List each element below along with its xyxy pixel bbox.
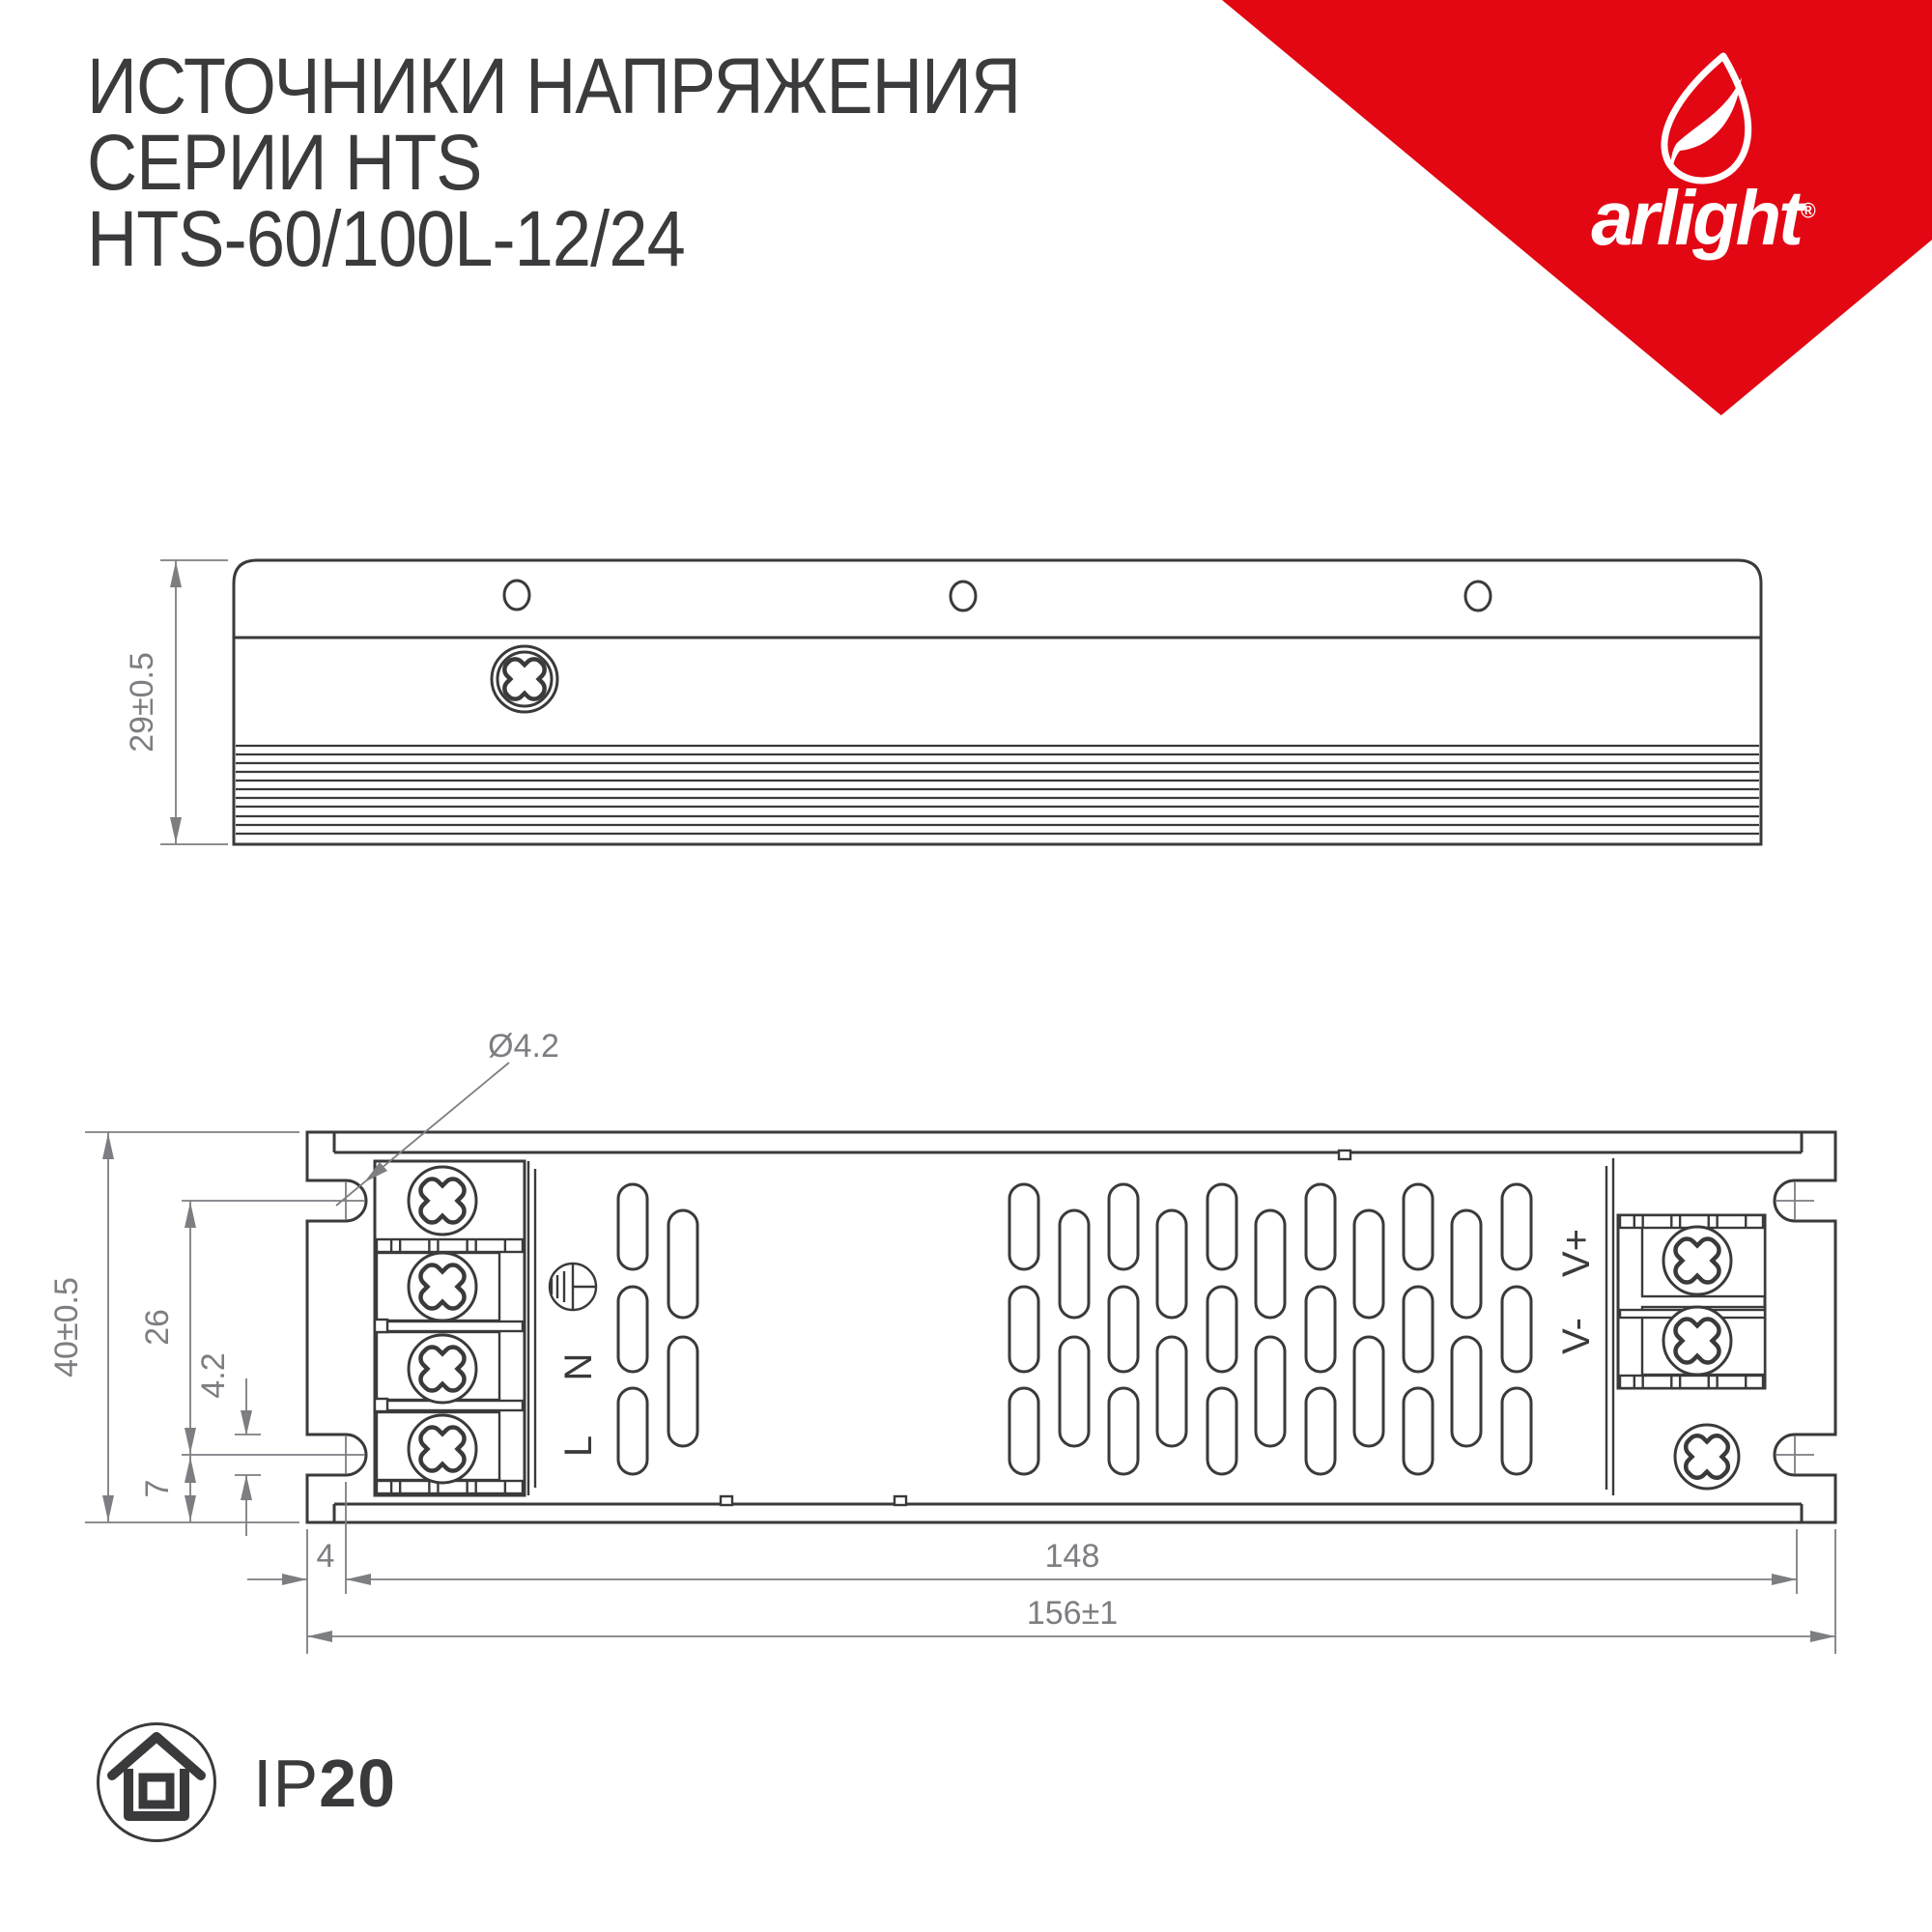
vent-slot <box>1256 1337 1285 1446</box>
terminal-label-v-plus: V+ <box>1555 1229 1598 1277</box>
vent-slot <box>1404 1388 1433 1474</box>
vent-slot <box>1009 1287 1038 1372</box>
dim-hole-diameter: Ø4.2 <box>488 1028 559 1065</box>
vent-slot <box>1404 1184 1433 1269</box>
indoor-house-icon <box>97 1722 216 1842</box>
vent-slot <box>1060 1210 1089 1318</box>
vent-slot <box>1009 1184 1038 1269</box>
vent-slot <box>1404 1287 1433 1372</box>
terminal-divider-tab <box>375 1320 387 1332</box>
screw <box>1663 1307 1731 1375</box>
screw <box>1675 1425 1739 1489</box>
vent-slot <box>1109 1388 1138 1474</box>
dim-26: 26 <box>139 1309 176 1346</box>
oval-hole <box>1465 582 1491 611</box>
screw <box>409 1415 476 1483</box>
terminal-divider-tab <box>375 1399 387 1411</box>
vent-slot <box>1502 1184 1531 1269</box>
vent-slot <box>1502 1388 1531 1474</box>
screw <box>1663 1227 1731 1294</box>
vent-slot <box>1354 1210 1383 1318</box>
dim-4: 4 <box>317 1538 335 1575</box>
screw <box>492 646 557 712</box>
technical-drawing: 29±0.5 40±0.5 26 4.2 7 4 148 156±1 Ø4.2 … <box>0 0 1932 1932</box>
screw <box>409 1253 476 1321</box>
vent-slot <box>1060 1337 1089 1446</box>
vent-slot <box>1207 1184 1236 1269</box>
side-view-body <box>234 560 1761 844</box>
ip-prefix: IP <box>253 1746 319 1821</box>
vent-slot <box>1452 1337 1481 1446</box>
vent-slot <box>618 1287 647 1372</box>
vent-slot <box>1207 1388 1236 1474</box>
vent-slot <box>1452 1210 1481 1318</box>
oval-hole <box>504 581 529 610</box>
screw <box>409 1335 476 1403</box>
dim-40: 40±0.5 <box>48 1277 85 1378</box>
flange-notch <box>721 1496 732 1505</box>
vent-slot <box>1207 1287 1236 1372</box>
datasheet-page: ИСТОЧНИКИ НАПРЯЖЕНИЯ СЕРИИ HTS HTS-60/10… <box>0 0 1932 1932</box>
earth-screw-icon <box>550 1264 596 1310</box>
vent-slot <box>1306 1184 1335 1269</box>
flange-notch <box>1339 1151 1350 1159</box>
vent-slot <box>1502 1287 1531 1372</box>
ip-value: 20 <box>319 1746 396 1821</box>
vent-slot <box>1109 1184 1138 1269</box>
oval-hole <box>951 582 976 611</box>
dim-4-2: 4.2 <box>195 1352 232 1398</box>
dim-148: 148 <box>1045 1538 1100 1575</box>
dim-156: 156±1 <box>1027 1595 1118 1632</box>
vent-slot <box>1109 1287 1138 1372</box>
ip-rating: IP20 <box>253 1745 396 1822</box>
vent-slot <box>1157 1210 1186 1318</box>
terminal-label-l: L <box>557 1435 600 1457</box>
vent-slot <box>618 1184 647 1269</box>
screw <box>409 1167 476 1235</box>
dim-29: 29±0.5 <box>124 652 160 753</box>
terminal-label-v-minus: V- <box>1555 1318 1598 1354</box>
vent-slot <box>1306 1287 1335 1372</box>
vent-slot <box>618 1388 647 1474</box>
vent-slot <box>668 1337 697 1446</box>
vent-slot <box>668 1210 697 1318</box>
vent-slot <box>1306 1388 1335 1474</box>
flange-notch <box>895 1496 906 1505</box>
vent-slot <box>1009 1388 1038 1474</box>
vent-slot <box>1256 1210 1285 1318</box>
dim-7: 7 <box>139 1480 176 1498</box>
vent-slot <box>1157 1337 1186 1446</box>
vent-slot <box>1354 1337 1383 1446</box>
tick-row <box>377 1239 523 1252</box>
tick-row <box>1620 1376 1763 1388</box>
terminal-divider <box>377 1321 523 1331</box>
side-view <box>234 560 1761 844</box>
terminal-label-n: N <box>557 1353 600 1381</box>
